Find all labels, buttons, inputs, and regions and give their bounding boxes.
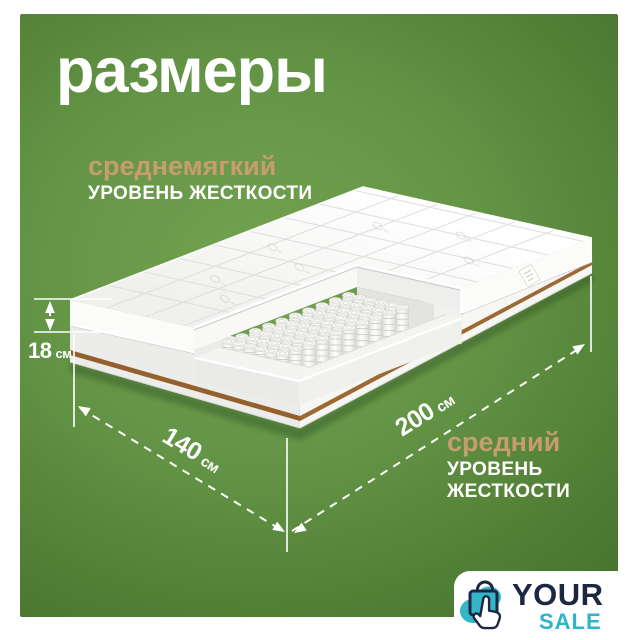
height-dimension-label: 18см [28,338,71,363]
your-sale-logo: YOUR SALE [454,571,640,640]
width-dimension-label: 140см [158,422,227,479]
firmness-bottom-block: средний УРОВЕНЬ ЖЕСТКОСТИ [447,428,640,503]
shopping-bag-click-icon [459,578,511,634]
mattress [70,187,592,440]
firmness-top-label: УРОВЕНЬ ЖЕСТКОСТИ [88,183,312,205]
logo-text: YOUR SALE [512,579,604,633]
page-title: размеры [56,40,327,103]
logo-line2: SALE [539,611,604,633]
firmness-bottom-level: средний [447,428,640,456]
firmness-top-block: среднемягкий УРОВЕНЬ ЖЕСТКОСТИ [88,152,312,205]
logo-line1: YOUR [512,579,604,610]
firmness-top-level: среднемягкий [88,152,312,180]
image-frame: 18см 140см 200см размеры среднемягкий УР… [0,0,640,640]
firmness-bottom-label: УРОВЕНЬ ЖЕСТКОСТИ [447,459,640,503]
